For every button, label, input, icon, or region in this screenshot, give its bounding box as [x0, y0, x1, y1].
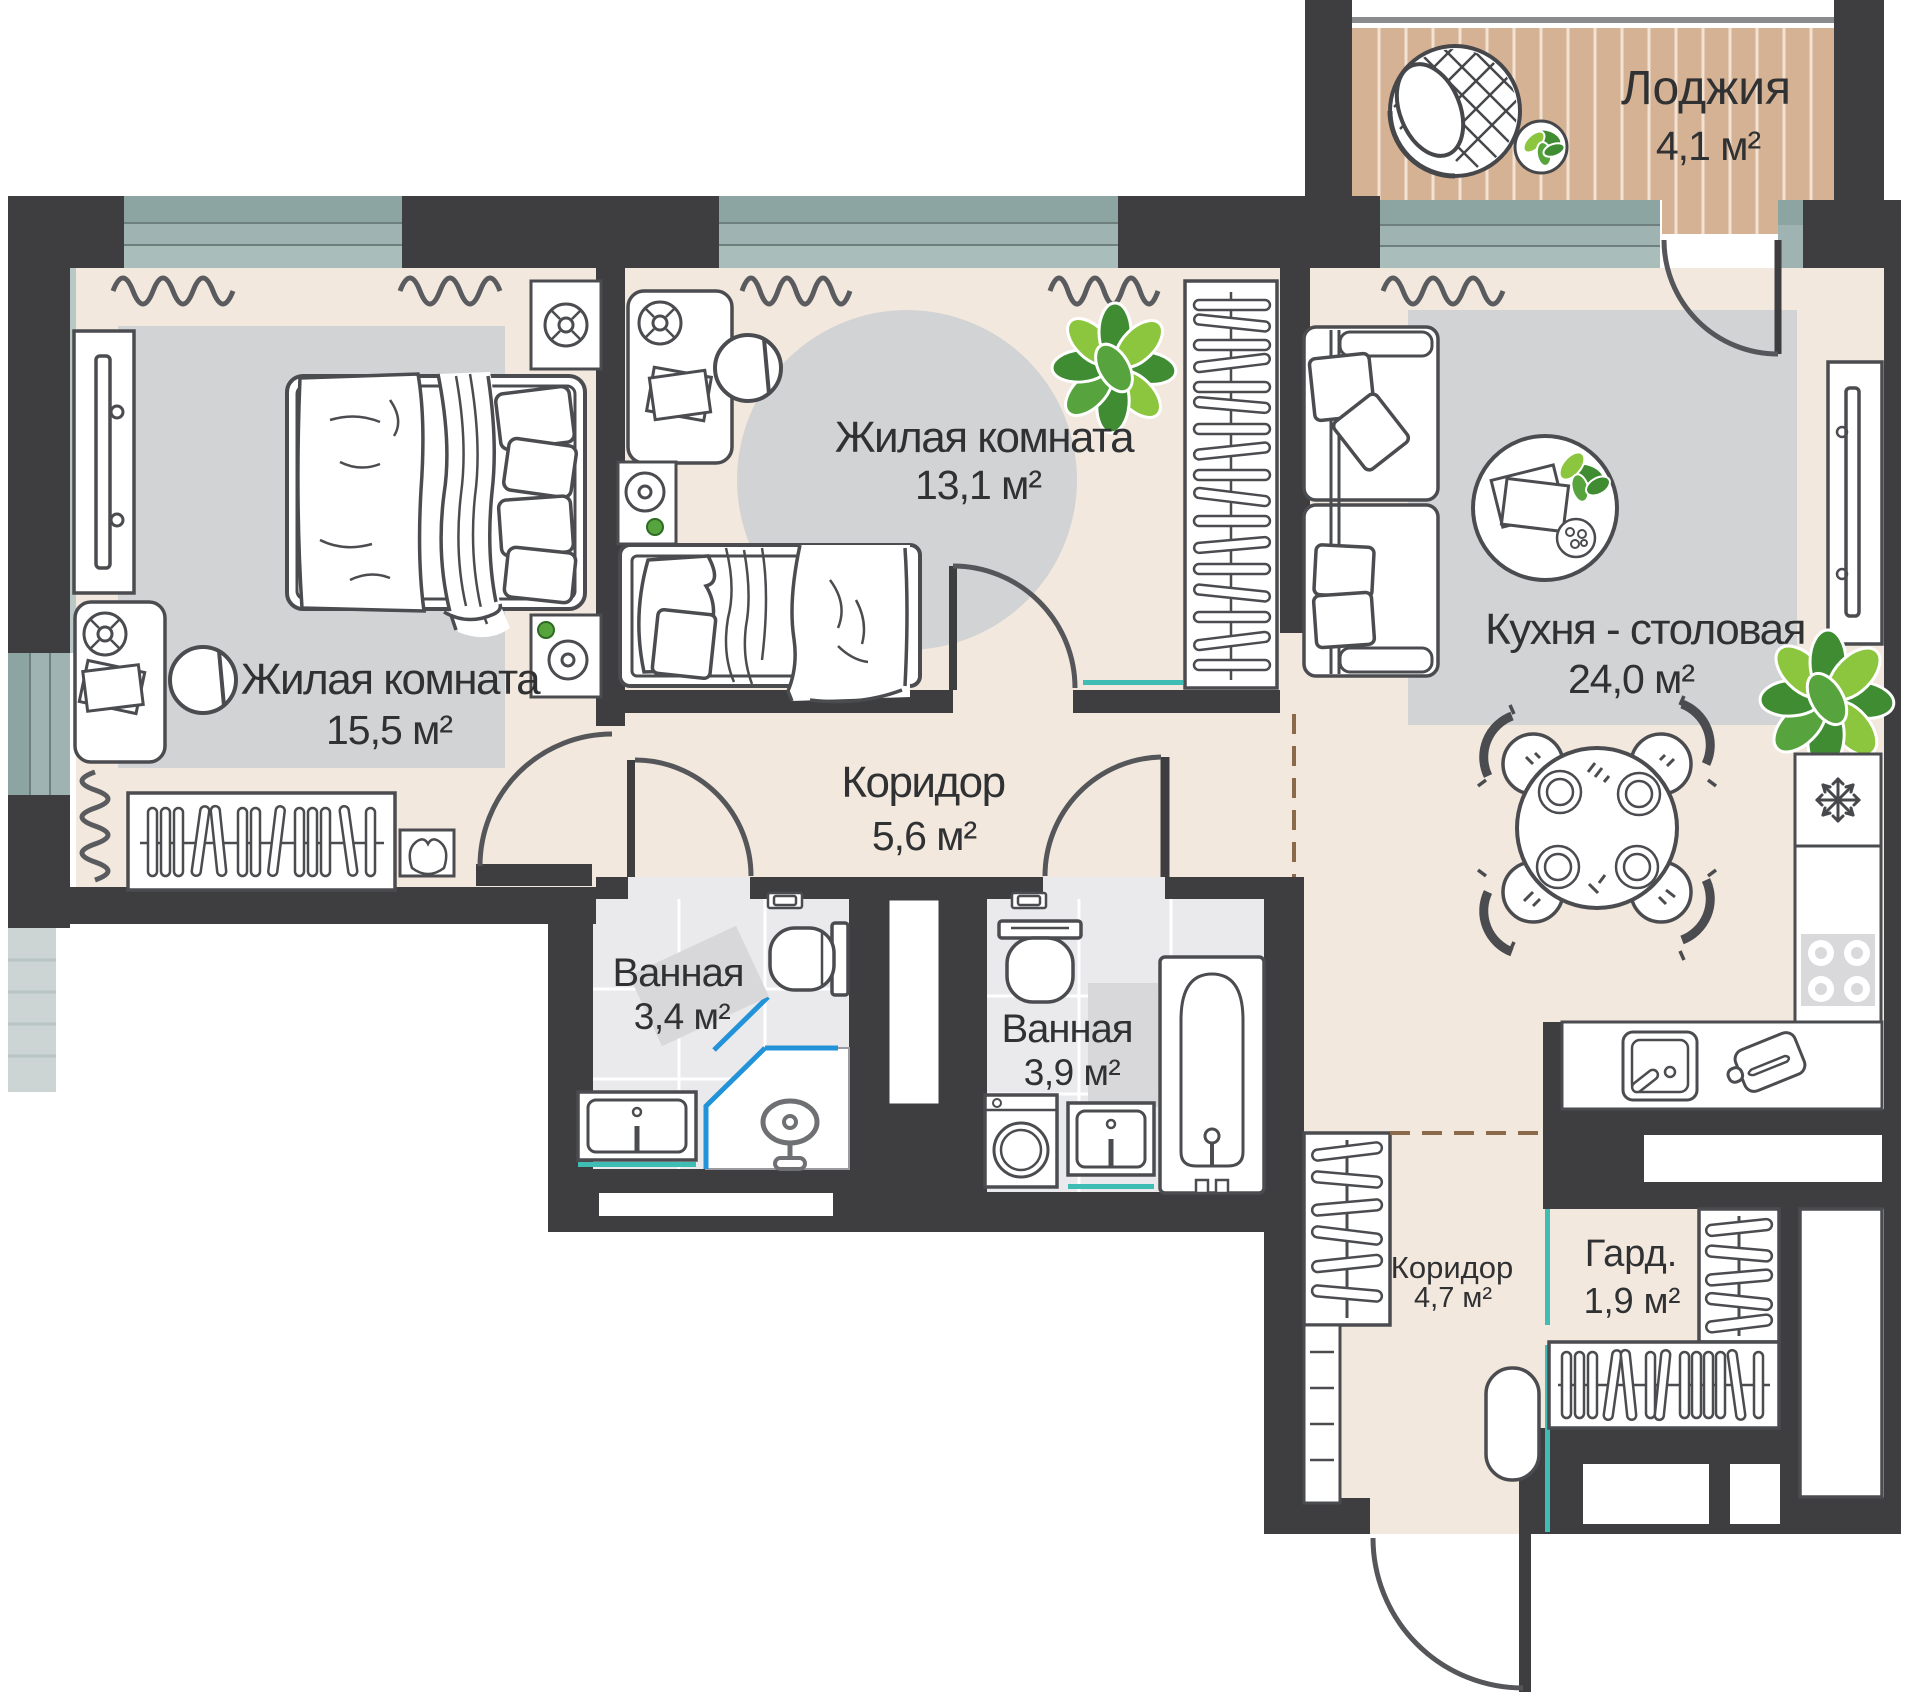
svg-text:Лоджия: Лоджия — [1621, 62, 1791, 115]
svg-text:24,0 м²: 24,0 м² — [1568, 656, 1694, 702]
svg-text:5,6 м²: 5,6 м² — [872, 813, 977, 859]
svg-text:13,1 м²: 13,1 м² — [915, 462, 1041, 508]
svg-text:Гард.: Гард. — [1585, 1233, 1678, 1275]
svg-text:Коридор: Коридор — [841, 758, 1004, 807]
svg-text:Коридор: Коридор — [1391, 1250, 1513, 1285]
svg-text:Кухня - столовая: Кухня - столовая — [1485, 605, 1805, 654]
svg-text:Жилая комната: Жилая комната — [241, 655, 541, 704]
svg-text:1,9 м²: 1,9 м² — [1584, 1280, 1681, 1321]
svg-text:15,5 м²: 15,5 м² — [326, 707, 452, 753]
svg-text:4,7 м²: 4,7 м² — [1414, 1282, 1492, 1314]
svg-text:3,4 м²: 3,4 м² — [634, 996, 731, 1037]
svg-text:Жилая комната: Жилая комната — [835, 413, 1135, 462]
svg-text:Ванная: Ванная — [612, 951, 743, 995]
svg-text:Ванная: Ванная — [1001, 1007, 1132, 1051]
svg-text:4,1 м²: 4,1 м² — [1656, 123, 1761, 169]
svg-text:3,9 м²: 3,9 м² — [1024, 1052, 1121, 1093]
